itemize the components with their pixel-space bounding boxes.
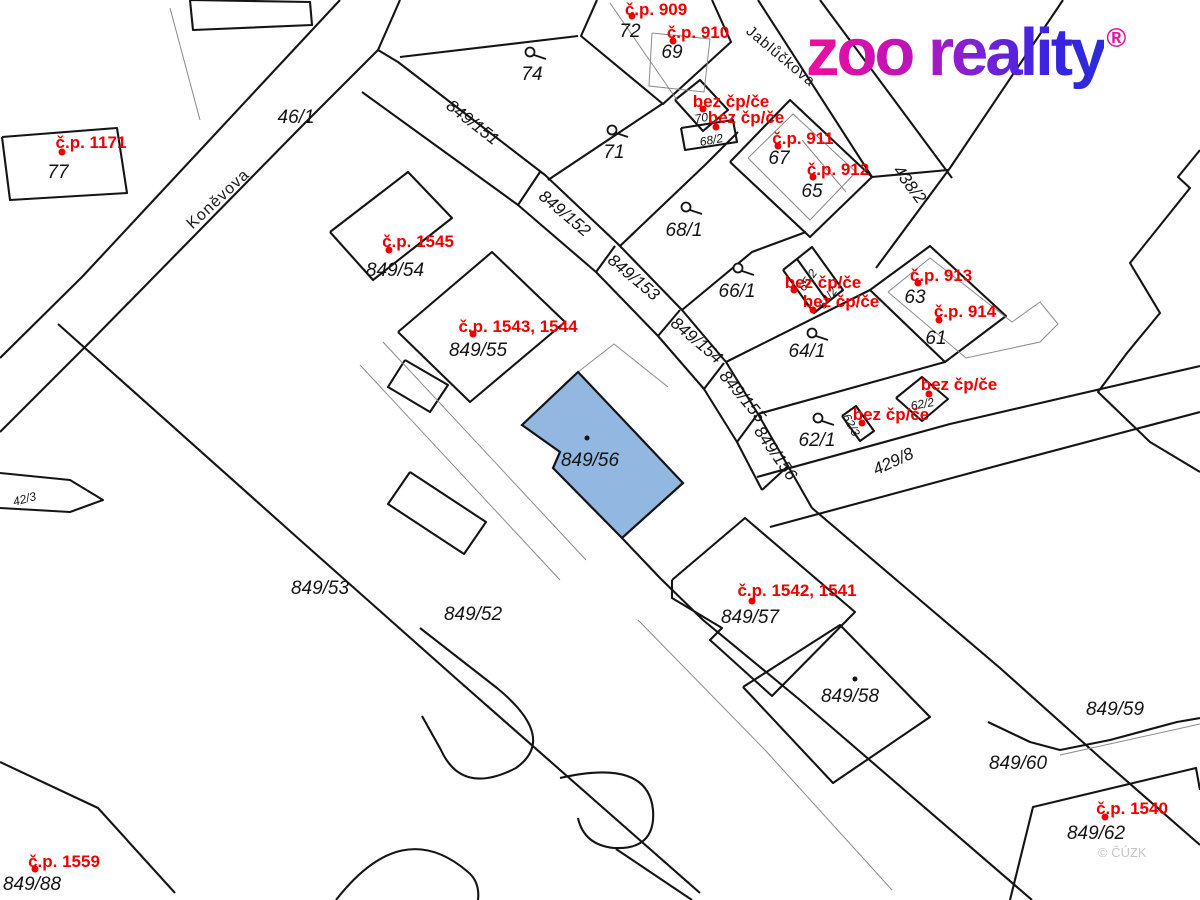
parcel-number-label: 65: [801, 181, 823, 202]
house-number-label: bez čp/če: [853, 405, 930, 424]
house-number-label: č.p. 910: [667, 23, 729, 42]
parcel-number-label: 849/154: [667, 313, 726, 367]
house-number-label: bez čp/če: [785, 273, 862, 292]
house-number-label: č.p. 1559: [28, 852, 100, 871]
parcel-number-label: 64/1: [789, 341, 826, 362]
landuse-circle-tick-icon: [822, 421, 834, 425]
street-name-label: Koněvova: [184, 166, 253, 232]
parcel-number-label: 849/151: [443, 96, 503, 149]
inner-boundary-line: [360, 365, 560, 580]
house-number-label: č.p. 914: [934, 302, 997, 321]
selected-parcel-label: 849/56: [561, 450, 620, 471]
parcel-boundary-line: [190, 0, 312, 30]
parcel-number-label: 849/52: [444, 604, 503, 625]
parcel-boundary-line: [988, 718, 1200, 750]
landuse-circle-tick-icon: [690, 210, 702, 214]
zoo-reality-logo: zoo reality®: [806, 14, 1198, 91]
parcel-number-label: 72: [619, 21, 641, 42]
landuse-circle-icon: [608, 126, 617, 135]
house-number-label: bez čp/če: [708, 108, 785, 127]
landuse-circle-icon: [814, 414, 823, 423]
parcel-number-label: 849/155: [716, 367, 770, 427]
building-dot: [585, 436, 590, 441]
landuse-circle-tick-icon: [616, 133, 628, 137]
parcel-number-label: 66/1: [719, 281, 756, 302]
parcel-number-label: 69: [661, 42, 683, 63]
building-outline-curve: [420, 628, 533, 779]
parcel-number-label: 42/3: [11, 489, 37, 509]
inner-boundary-line: [638, 620, 892, 890]
house-number-label: č.p. 912: [807, 160, 869, 179]
house-number-label: č.p. 1171: [56, 133, 127, 152]
parcel-boundary-line: [812, 508, 1200, 845]
house-number-label: č.p. 1543, 1544: [458, 317, 578, 336]
landuse-circle-icon: [808, 329, 817, 338]
landuse-circle-tick-icon: [742, 271, 754, 275]
parcel-number-label: 46/1: [278, 107, 315, 128]
parcel-boundary-line: [400, 36, 578, 57]
parcel-number-label: 63: [904, 287, 926, 308]
parcel-number-label: 62/1: [799, 430, 836, 451]
parcel-number-label: 438/2: [889, 162, 930, 208]
landuse-circle-tick-icon: [534, 55, 546, 59]
parcel-number-label: 849/153: [604, 250, 664, 304]
inner-boundary-line: [170, 8, 200, 120]
parcel-number-label: 849/53: [291, 578, 350, 599]
parcel-number-label: 71: [603, 142, 624, 163]
parcel-number-label: 68/1: [666, 220, 703, 241]
house-number-label: č.p. 913: [910, 266, 972, 285]
building-outline-curve: [336, 849, 478, 900]
house-number-label: č.p. 911: [772, 129, 833, 148]
parcel-number-label: 429/8: [870, 444, 917, 479]
logo-wordmark: zoo reality: [806, 15, 1104, 90]
house-number-label: bez čp/če: [921, 375, 998, 394]
parcel-number-label: 849/58: [821, 686, 880, 707]
landuse-circle-icon: [734, 264, 743, 273]
inner-boundary-line: [383, 342, 586, 560]
parcel-number-label: 67: [768, 148, 791, 169]
building-outline-curve: [616, 849, 692, 900]
landuse-circle-tick-icon: [816, 336, 828, 340]
parcel-number-label: 849/60: [989, 753, 1048, 774]
parcel-number-label: 849/88: [3, 874, 62, 895]
cuzk-watermark: © ČÚZK: [1098, 845, 1147, 860]
parcel-number-label: 74: [521, 64, 542, 85]
landuse-circle-icon: [682, 203, 691, 212]
parcel-number-label: 61: [925, 328, 946, 349]
parcel-number-label: 68/2: [699, 131, 725, 149]
house-number-label: bez čp/če: [803, 292, 880, 311]
parcel-boundary-line: [1098, 150, 1200, 472]
parcel-number-label: 849/54: [366, 260, 424, 281]
map-canvas[interactable]: 849/567746/17472697168/166/1676564/16361…: [0, 0, 1200, 900]
parcel-number-label: 849/156: [750, 423, 801, 485]
parcel-number-label: 849/55: [449, 340, 508, 361]
house-number-label: č.p. 1542, 1541: [737, 581, 856, 600]
building-dot: [853, 677, 858, 682]
inner-boundary-line: [578, 344, 668, 387]
parcel-number-label: 849/62: [1067, 823, 1126, 844]
parcel-number-label: 77: [47, 162, 70, 183]
house-number-label: č.p. 909: [625, 0, 687, 19]
parcel-number-label: 849/59: [1086, 699, 1145, 720]
house-number-label: č.p. 1545: [382, 232, 454, 251]
parcel-number-label: 849/57: [721, 607, 781, 628]
landuse-circle-icon: [526, 48, 535, 57]
registered-trademark-icon: ®: [1106, 23, 1126, 53]
cadastral-map-view: 849/567746/17472697168/166/1676564/16361…: [0, 0, 1200, 900]
house-number-label: č.p. 1540: [1096, 799, 1168, 818]
